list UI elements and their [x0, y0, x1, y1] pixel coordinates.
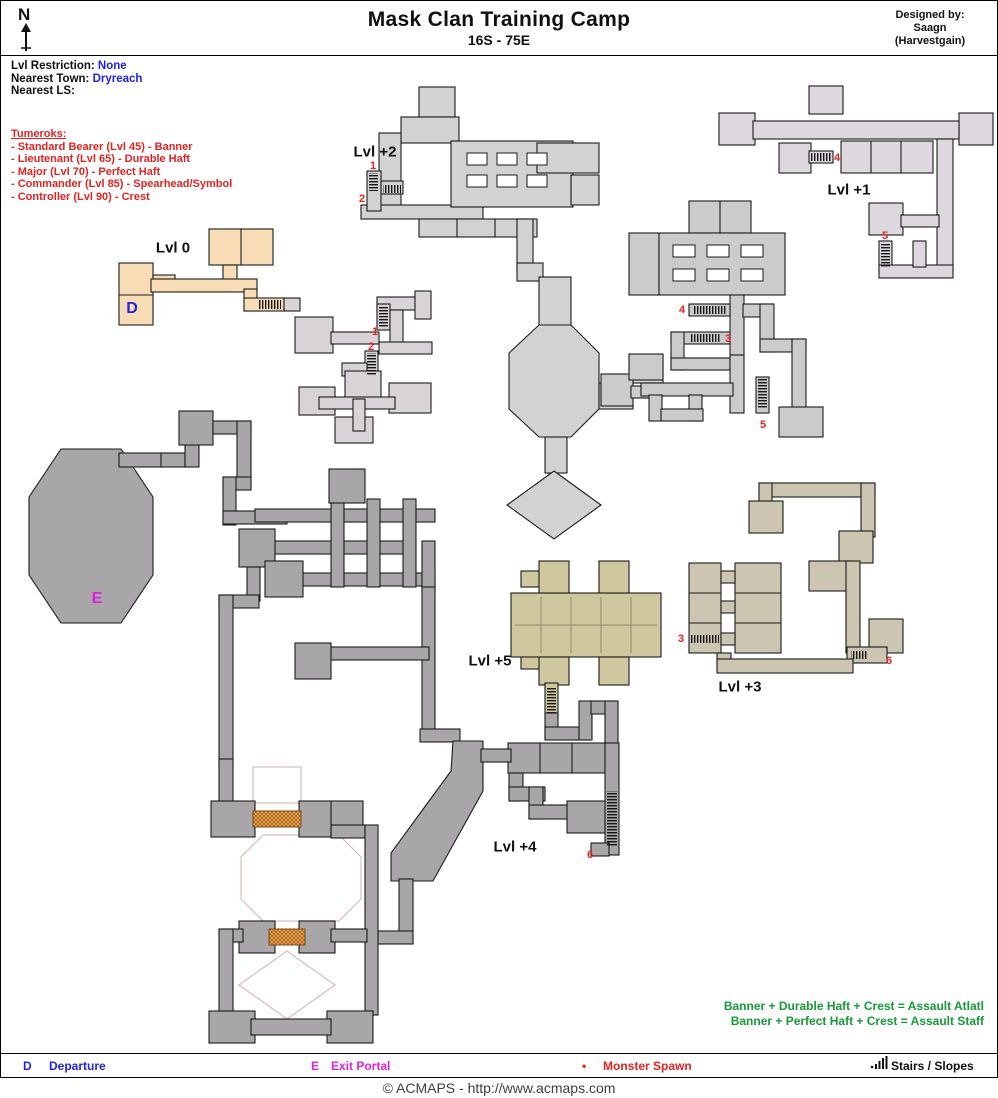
map-marker: E	[92, 590, 103, 608]
stair-number-label: 2	[368, 341, 374, 353]
level-label: Lvl +3	[719, 679, 762, 696]
stair-number-label: 3	[725, 333, 731, 345]
legend-bar: D Departure E Exit Portal • Monster Spaw…	[1, 1053, 997, 1078]
legend-stairs-icon	[870, 1054, 888, 1078]
level-label: Lvl +5	[469, 653, 512, 670]
legend-departure-label: Departure	[49, 1054, 106, 1078]
legend-stairs-label: Stairs / Slopes	[891, 1054, 974, 1078]
stair-number-label: 5	[882, 230, 888, 242]
stair-number-label: 1	[370, 160, 376, 172]
legend-spawn-symbol: •	[582, 1054, 586, 1078]
level-label: Lvl 0	[156, 240, 190, 257]
legend-spawn-label: Monster Spawn	[603, 1054, 692, 1078]
stair-number-label: 1	[372, 326, 378, 338]
level-label: Lvl +1	[828, 182, 871, 199]
legend-departure-symbol: D	[23, 1054, 32, 1078]
combine-notes: Banner + Durable Haft + Crest = Assault …	[724, 999, 984, 1029]
stair-number-label: 4	[679, 304, 685, 316]
combine-line: Banner + Perfect Haft + Crest = Assault …	[724, 1014, 984, 1029]
map-marker: D	[126, 300, 138, 318]
stair-number-label: 6	[587, 849, 593, 861]
level-label: Lvl +2	[354, 144, 397, 161]
legend-exit-symbol: E	[311, 1054, 319, 1078]
stair-number-label: 5	[760, 419, 766, 431]
map-label-layer: Lvl 0Lvl +2Lvl +1Lvl +3Lvl +5Lvl +412124…	[1, 1, 998, 1078]
stair-number-label: 3	[678, 633, 684, 645]
level-label: Lvl +4	[494, 839, 537, 856]
stair-number-label: 2	[359, 193, 365, 205]
legend-exit-label: Exit Portal	[331, 1054, 390, 1078]
combine-line: Banner + Durable Haft + Crest = Assault …	[724, 999, 984, 1014]
stair-number-label: 6	[886, 655, 892, 667]
map-sheet: N Mask Clan Training Camp 16S - 75E Desi…	[0, 0, 998, 1078]
copyright-line: © ACMAPS - http://www.acmaps.com	[0, 1080, 998, 1096]
stair-number-label: 4	[834, 152, 840, 164]
